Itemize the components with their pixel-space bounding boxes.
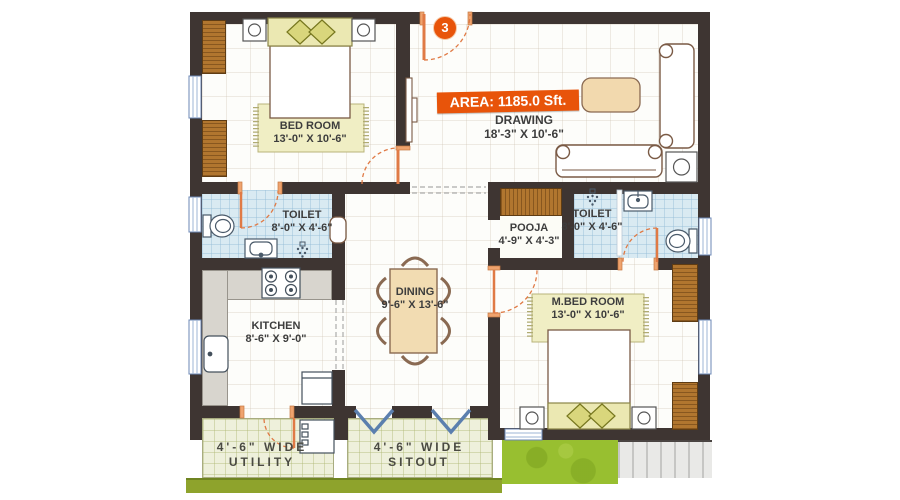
room-label-bedroom: BED ROOM 13'-0" X 10'-6" xyxy=(273,120,346,146)
pooja-dims: 4'-9" X 4'-3" xyxy=(499,235,560,248)
room-label-toilet-left: TOILET 8'-0" X 4'-6" xyxy=(272,209,333,235)
dining-name: DINING xyxy=(381,286,448,299)
wardrobe xyxy=(672,264,698,322)
plan-number-marker: 3 xyxy=(433,16,457,40)
utility-line1: 4'-6" WIDE xyxy=(217,440,308,455)
bedroom-dims: 13'-0" X 10'-6" xyxy=(273,133,346,146)
toilet-left-dims: 8'-0" X 4'-6" xyxy=(272,222,333,235)
room-label-utility: 4'-6" WIDE UTILITY xyxy=(217,440,308,470)
wall xyxy=(396,12,410,150)
floor-plan: BED ROOM 13'-0" X 10'-6" DRAWING 18'-3" … xyxy=(0,0,900,500)
dining-dims: 9'-6" X 13'-6" xyxy=(381,299,448,312)
kitchen-dims: 8'-6" X 9'-0" xyxy=(246,333,307,346)
sitout-line2: SITOUT xyxy=(374,455,465,470)
paved-deck xyxy=(618,440,712,478)
utility-line2: UTILITY xyxy=(217,455,308,470)
wall xyxy=(332,182,345,300)
bedroom-name: BED ROOM xyxy=(273,120,346,133)
room-label-master-bedroom: M.BED ROOM 13'-0" X 10'-6" xyxy=(551,296,624,322)
wardrobe xyxy=(202,20,226,74)
wall xyxy=(488,182,500,220)
room-label-drawing: DRAWING 18'-3" X 10'-6" xyxy=(484,113,564,141)
kitchen-name: KITCHEN xyxy=(246,320,307,333)
toilet-right-dims: 8'-0" X 4'-6" xyxy=(562,221,623,234)
grass-strip xyxy=(186,478,502,493)
grass-patch xyxy=(502,440,618,484)
wardrobe xyxy=(202,120,227,177)
room-label-dining: DINING 9'-6" X 13'-6" xyxy=(381,286,448,312)
master-bedroom-name: M.BED ROOM xyxy=(551,296,624,309)
wall xyxy=(488,315,500,440)
wall xyxy=(282,182,410,194)
area-banner: AREA: 1185.0 Sft. xyxy=(437,90,579,114)
master-bedroom-dims: 13'-0" X 10'-6" xyxy=(551,309,624,322)
pooja-name: POOJA xyxy=(499,222,560,235)
toilet-right-name: TOILET xyxy=(562,208,623,221)
room-label-pooja: POOJA 4'-9" X 4'-3" xyxy=(499,222,560,248)
wall xyxy=(392,406,432,418)
wall xyxy=(488,258,620,270)
sitout-line1: 4'-6" WIDE xyxy=(374,440,465,455)
wardrobe xyxy=(672,382,698,430)
wall xyxy=(190,258,345,270)
room-label-toilet-right: TOILET 8'-0" X 4'-6" xyxy=(562,208,623,234)
kitchen-counter-left xyxy=(202,270,228,406)
room-label-kitchen: KITCHEN 8'-6" X 9'-0" xyxy=(246,320,307,346)
wall xyxy=(334,406,348,440)
wall xyxy=(190,12,202,440)
drawing-name: DRAWING xyxy=(484,113,564,127)
room-label-sitout: 4'-6" WIDE SITOUT xyxy=(374,440,465,470)
pooja-cabinet xyxy=(500,188,562,216)
wall xyxy=(488,248,500,270)
wall xyxy=(470,12,710,24)
toilet-left-name: TOILET xyxy=(272,209,333,222)
wall xyxy=(698,12,710,440)
drawing-dims: 18'-3" X 10'-6" xyxy=(484,127,564,141)
